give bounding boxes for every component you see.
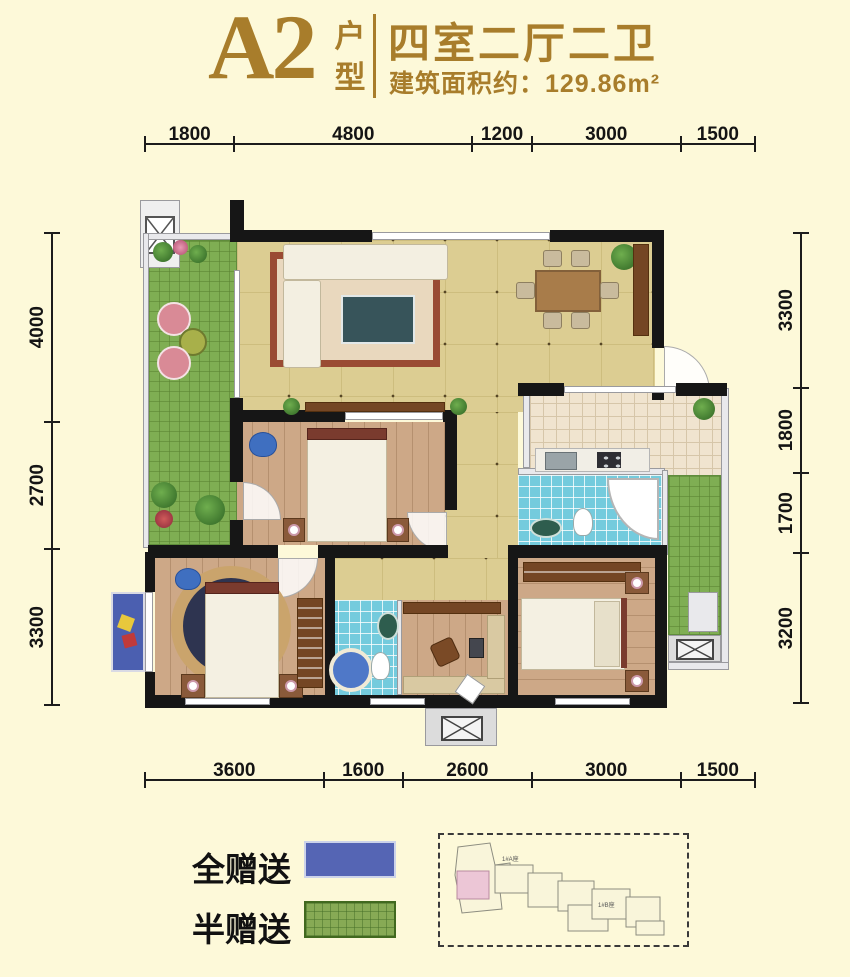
- floorplan-page: A2 户型 四室二厅二卫 建筑面积约：129.86m² 1800 4800 12…: [0, 0, 850, 977]
- dim-right-3: 1700: [775, 473, 809, 553]
- wall-garden-bedroom2: [230, 398, 243, 482]
- dimension-line-top: 1800 4800 1200 3000 1500: [145, 124, 755, 152]
- bed3-pillow: [594, 601, 620, 667]
- bathtub-round: [329, 648, 373, 692]
- dining-table: [535, 270, 601, 312]
- outer-wall-right: [721, 388, 729, 670]
- shaft-x-icon: [441, 716, 483, 741]
- bathroom2-study-wall: [397, 600, 402, 695]
- garden-right-wall-bottom: [668, 662, 729, 670]
- dim-right-4: 3200: [775, 553, 809, 703]
- keyplan: 1#A座 1#B座: [438, 833, 689, 947]
- nightstand: [625, 670, 649, 692]
- master-headboard: [205, 582, 279, 594]
- window-bottom-2: [370, 698, 425, 705]
- dim-bottom-1: 3600: [145, 760, 324, 788]
- header-divider: [373, 14, 376, 98]
- dimension-line-left: 4000 2700 3300: [26, 233, 60, 705]
- dining-chair: [571, 312, 590, 329]
- bed2: [307, 428, 387, 542]
- keyplan-tower-b-label: 1#B座: [598, 901, 615, 909]
- plant-living-left: [283, 398, 300, 415]
- window-bottom-3: [555, 698, 630, 705]
- dim-top-2: 4800: [234, 124, 472, 152]
- dining-chair: [543, 250, 562, 267]
- study-computer: [469, 638, 484, 658]
- keyplan-tower-a-label: 1#A座: [502, 855, 519, 863]
- wall-mid-left: [148, 545, 278, 558]
- flower-red: [155, 510, 173, 528]
- master-wardrobe: [297, 598, 323, 688]
- dim-top-5: 1500: [681, 124, 755, 152]
- bed3: [521, 598, 625, 670]
- dining-chair: [516, 282, 535, 299]
- flower-bed-bottom2: [195, 495, 225, 525]
- toilet1: [573, 508, 593, 536]
- wall-top-right: [550, 230, 664, 242]
- dim-right-2: 1800: [775, 388, 809, 473]
- header: A2 户型 四室二厅二卫 建筑面积约：129.86m²: [0, 0, 850, 115]
- dim-bottom-5: 1500: [681, 760, 755, 788]
- chair-master: [175, 568, 201, 590]
- dim-top-1: 1800: [145, 124, 234, 152]
- kitchen-window-top: [564, 386, 676, 393]
- kitchen-left-wall: [523, 388, 530, 468]
- dim-top-4: 3000: [532, 124, 681, 152]
- floorplan: [145, 200, 755, 723]
- flower-bed-top: [153, 242, 173, 262]
- nightstand: [181, 674, 205, 698]
- wall-kitchen-top-right: [676, 383, 727, 396]
- wall-corridor: [445, 410, 457, 510]
- keyplan-building-outline: 1#A座 1#B座: [440, 835, 683, 941]
- dim-bottom-3: 2600: [403, 760, 532, 788]
- study-shelf: [403, 602, 501, 614]
- wall-garden-bedroom2-low: [230, 520, 243, 545]
- master-balcony-window: [145, 592, 153, 672]
- wall-right-upper: [652, 230, 664, 348]
- dim-left-3: 3300: [26, 549, 60, 705]
- garden-wall-left: [143, 233, 149, 548]
- flue-shaft-bottom: [425, 708, 497, 746]
- keyplan-highlight-unit: [457, 871, 489, 899]
- flue-shaft-right: [668, 635, 721, 662]
- garden-table-chair2: [157, 346, 191, 380]
- bedroom3-wardrobe: [523, 562, 641, 582]
- tv-cabinet: [305, 402, 445, 412]
- bathroom1-garden-wall: [662, 470, 668, 555]
- chair-bedroom2: [249, 432, 277, 457]
- unit-name: A2: [208, 0, 314, 100]
- flower-bed-bottom: [151, 482, 177, 508]
- unit-type-label: 户型: [333, 16, 367, 98]
- kitchen-sink: [545, 452, 577, 470]
- bedroom2-window-top: [345, 412, 443, 420]
- bathroom1-sink: [530, 518, 562, 538]
- living-window-top: [372, 232, 550, 240]
- kitchen-stove: [597, 452, 621, 468]
- wall-study-right: [508, 555, 518, 708]
- hallway-lower-floor: [330, 558, 518, 600]
- master-bed: [205, 582, 279, 698]
- legend-half-gift-label: 半赠送: [192, 903, 291, 951]
- wall-kitchen-top-left: [518, 383, 564, 396]
- wall-bedroom3-top: [508, 545, 667, 558]
- bed2-headboard: [307, 428, 387, 440]
- garden-wall-top: [148, 233, 234, 240]
- sofa-left: [283, 280, 321, 368]
- dimension-line-right: 3300 1800 1700 3200: [775, 233, 809, 703]
- wall-mid-right: [318, 545, 448, 558]
- legend-full-gift-swatch: [304, 841, 396, 878]
- wall-master-left-up: [145, 552, 155, 592]
- nightstand: [283, 518, 305, 542]
- pillow-yellow: [117, 614, 135, 632]
- flower-bed-top2: [189, 245, 207, 263]
- living-garden-window: [234, 270, 240, 398]
- dimension-line-bottom: 3600 1600 2600 3000 1500: [145, 760, 755, 788]
- flower-pink: [173, 240, 188, 255]
- window-bottom-1: [185, 698, 270, 705]
- coffee-table: [341, 295, 415, 344]
- nightstand: [625, 572, 649, 594]
- dining-chair: [543, 312, 562, 329]
- legend-full-gift-label: 全赠送: [192, 843, 291, 891]
- wall-top-left: [230, 230, 372, 242]
- shaft-x-icon: [676, 639, 714, 660]
- dining-chair: [600, 282, 619, 299]
- balcony-full-gift: [111, 592, 145, 672]
- sofa-back: [283, 244, 448, 280]
- dim-bottom-2: 1600: [324, 760, 403, 788]
- wall-bedroom3-right: [655, 555, 667, 708]
- study-desk-right: [487, 615, 505, 679]
- pillow-red: [122, 633, 138, 649]
- nightstand: [387, 518, 409, 542]
- area-text: 建筑面积约：129.86m²: [389, 64, 660, 100]
- toilet2: [371, 652, 390, 680]
- dim-top-3: 1200: [472, 124, 532, 152]
- bed3-headboard: [621, 598, 627, 668]
- dim-left-1: 4000: [26, 233, 60, 422]
- dining-chair: [571, 250, 590, 267]
- dim-left-2: 2700: [26, 422, 60, 549]
- washing-machine: [688, 592, 718, 632]
- bathroom2-sink: [377, 612, 399, 640]
- rooms-title: 四室二厅二卫: [388, 10, 658, 71]
- dim-right-1: 3300: [775, 233, 809, 388]
- plant-living-right: [450, 398, 467, 415]
- dim-bottom-4: 3000: [532, 760, 681, 788]
- legend-half-gift-swatch: [304, 901, 396, 938]
- plant-kitchen: [693, 398, 715, 420]
- dining-cabinet: [633, 244, 649, 336]
- wall-master-right: [325, 558, 335, 708]
